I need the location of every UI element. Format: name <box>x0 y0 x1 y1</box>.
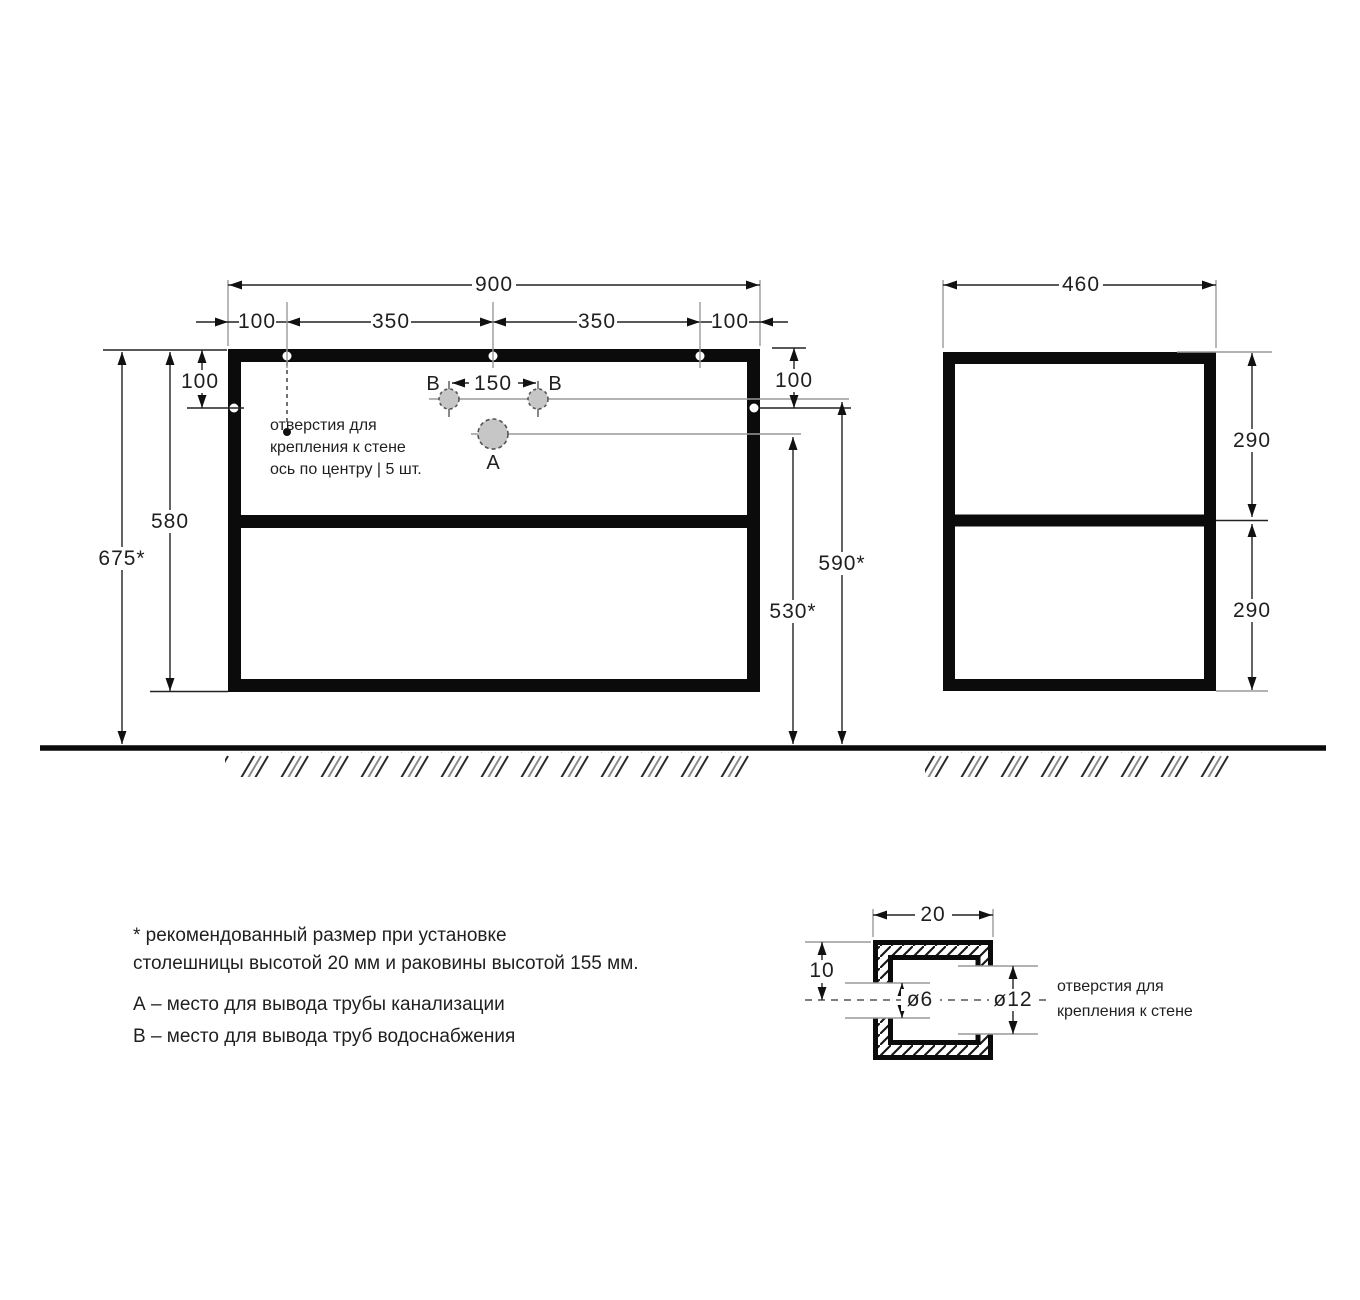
dim-a-height-from-floor: 530* <box>769 600 816 623</box>
dim-hole-large: ø12 <box>993 988 1032 1011</box>
dim-b-height-from-floor: 590* <box>818 552 865 575</box>
label-b-left: B <box>426 373 439 395</box>
mount-hole-side-right <box>750 404 759 413</box>
dim-frame-height: 580 <box>151 510 189 533</box>
legend-asterisk-line2: столешницы высотой 20 мм и раковины высо… <box>133 953 639 974</box>
dim-segment-2: 350 <box>372 310 410 333</box>
detail-note-line1: отверстия для <box>1057 978 1164 995</box>
holes-note-line3: ось по центру | 5 шт. <box>270 461 422 478</box>
floor <box>40 748 1326 777</box>
dim-side-depth: 460 <box>1062 273 1100 296</box>
front-view <box>229 352 849 686</box>
dim-offset-top-left: 100 <box>181 370 219 393</box>
label-a: A <box>486 452 500 474</box>
a-hole <box>478 419 508 449</box>
dim-segment-3: 350 <box>578 310 616 333</box>
holes-note-line2: крепления к стене <box>270 439 406 456</box>
technical-drawing-canvas: 900 100 350 350 100 100 100 580 675* 590… <box>0 0 1360 1300</box>
legend-asterisk-line1: * рекомендованный размер при установке <box>133 925 507 946</box>
b-hole-left <box>439 389 459 409</box>
dim-height-to-floor: 675* <box>98 547 145 570</box>
legend-line-a: А – место для вывода трубы канализации <box>133 994 505 1015</box>
legend-line-b: В – место для вывода труб водоснабжения <box>133 1026 515 1047</box>
dim-tube-half: 10 <box>809 959 834 982</box>
dim-side-upper: 290 <box>1233 429 1271 452</box>
floor-hatch-right <box>925 752 1231 777</box>
dim-offset-top-right: 100 <box>775 369 813 392</box>
b-hole-right <box>528 389 548 409</box>
side-view <box>944 358 1215 685</box>
dim-b-spacing: 150 <box>474 372 512 395</box>
dim-hole-small: ø6 <box>907 988 934 1011</box>
dim-segment-1: 100 <box>238 310 276 333</box>
floor-hatch-left <box>225 752 757 777</box>
dim-tube-width: 20 <box>920 903 945 926</box>
detail-note-line2: крепления к стене <box>1057 1003 1193 1020</box>
holes-note-line1: отверстия для <box>270 417 377 434</box>
dim-segment-4: 100 <box>711 310 749 333</box>
label-b-right: B <box>548 373 561 395</box>
dim-side-lower: 290 <box>1233 599 1271 622</box>
drawing-svg: 900 100 350 350 100 100 100 580 675* 590… <box>0 0 1360 1300</box>
dim-front-width-total: 900 <box>475 273 513 296</box>
